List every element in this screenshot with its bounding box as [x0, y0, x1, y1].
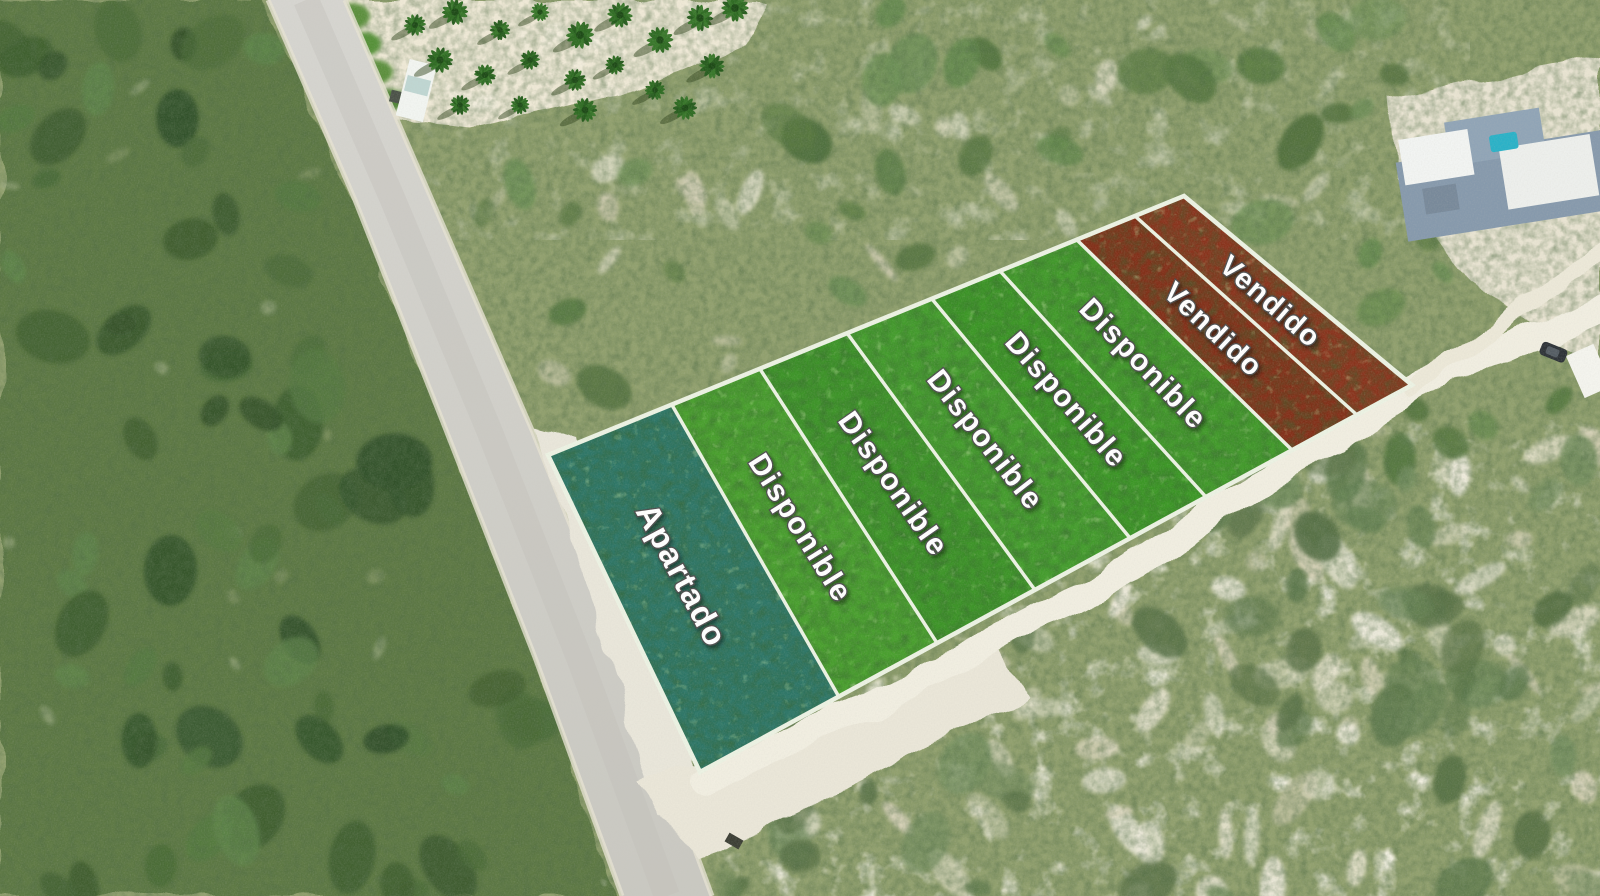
aerial-photo: Apartado Disponible Disponible Disponibl… — [0, 0, 1600, 896]
aerial-photo-stage: Apartado Disponible Disponible Disponibl… — [0, 0, 1600, 896]
photo-grain — [0, 0, 1600, 896]
